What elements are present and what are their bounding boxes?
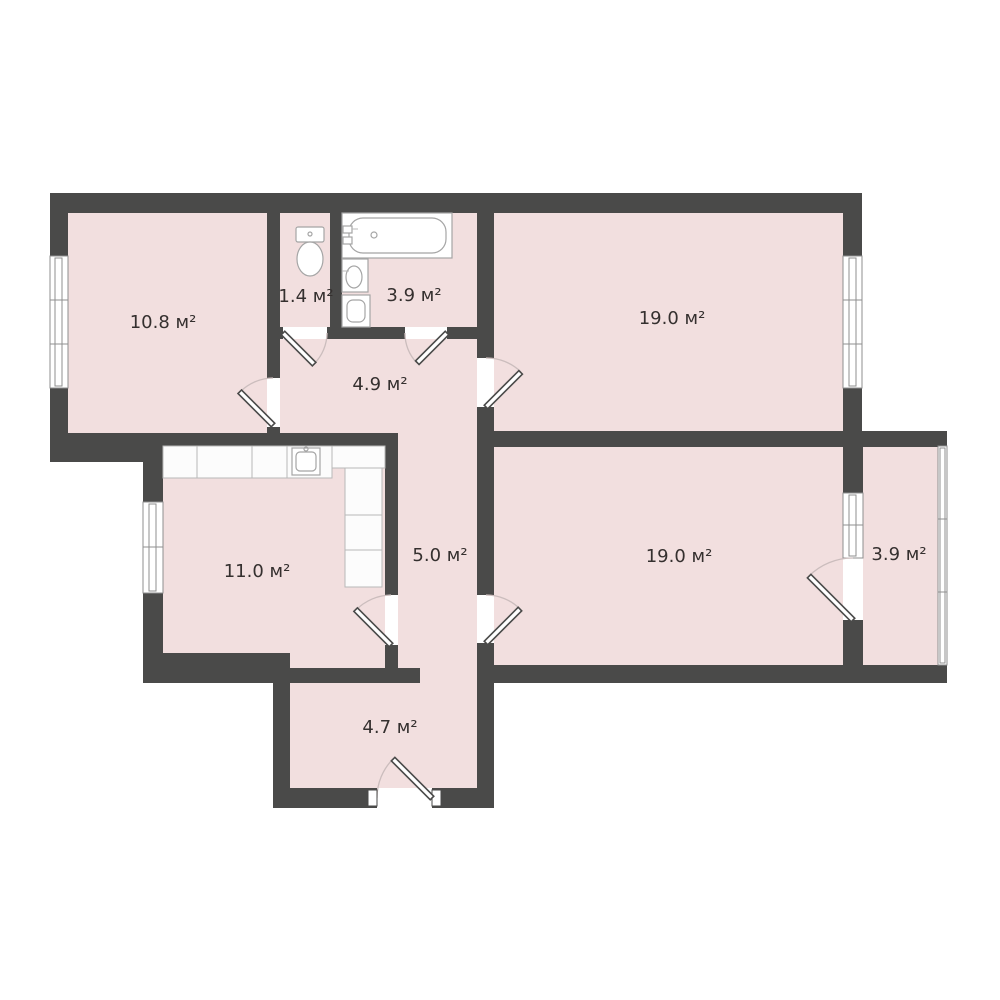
window-kitchen	[143, 502, 163, 593]
toilet-icon	[296, 227, 324, 276]
room-label-kitchen: 11.0 м²	[224, 561, 291, 582]
room-label-bathroom: 3.9 м²	[386, 285, 441, 306]
window-balcony-wall	[843, 493, 863, 558]
wall-segment	[290, 668, 420, 683]
wall-segment	[330, 213, 342, 327]
floor-plan: 10.8 м² 1.4 м² 3.9 м² 19.0 м² 4.9 м² 11.…	[0, 0, 1000, 1000]
wall-segment	[50, 193, 862, 213]
room-label-hallway: 4.9 м²	[352, 374, 407, 395]
room-label-entry: 4.7 м²	[362, 717, 417, 738]
window-room-top-left	[50, 256, 68, 388]
room-label-top-left: 10.8 м²	[130, 312, 197, 333]
window-room-top-right	[843, 256, 862, 388]
washing-machine-icon	[342, 295, 370, 327]
floor-plan-page: 10.8 м² 1.4 м² 3.9 м² 19.0 м² 4.9 м² 11.…	[0, 0, 1000, 1000]
window-balcony-glazing	[938, 446, 947, 665]
bathroom-sink-icon	[342, 259, 368, 292]
wall-segment	[273, 653, 290, 808]
wall-segment	[143, 653, 290, 683]
bathtub-icon	[342, 213, 452, 258]
room-floors	[68, 213, 938, 788]
floor-corridor-passage	[420, 650, 477, 683]
kitchen-sink-icon	[292, 447, 320, 475]
room-label-middle-right: 19.0 м²	[646, 546, 713, 567]
wall-segment	[143, 433, 398, 446]
wall-segment	[477, 213, 494, 808]
room-label-corridor: 5.0 м²	[412, 545, 467, 566]
wall-segment	[477, 665, 947, 683]
room-label-balcony: 3.9 м²	[871, 544, 926, 565]
wall-segment	[477, 431, 947, 447]
room-label-top-right: 19.0 м²	[639, 308, 706, 329]
room-label-wc: 1.4 м²	[278, 286, 333, 307]
